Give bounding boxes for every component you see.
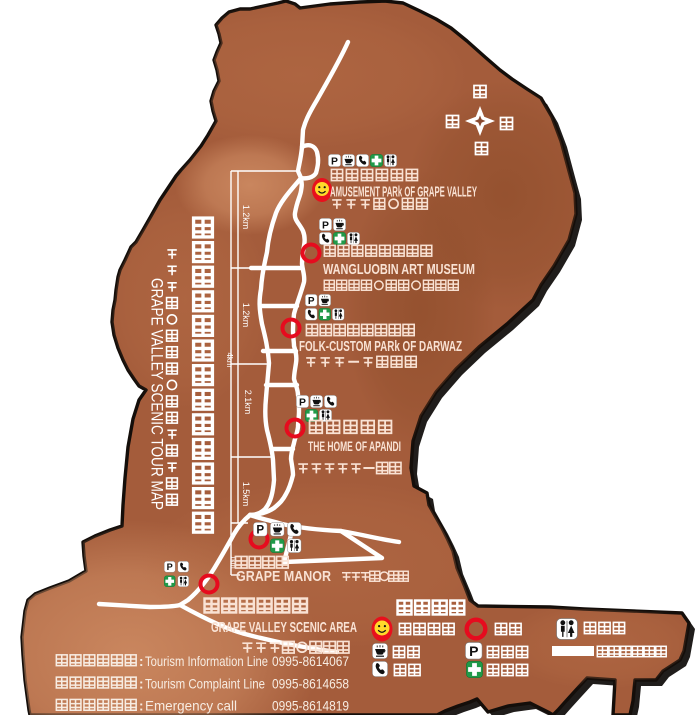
- svg-text:GRAPE MANOR: GRAPE MANOR: [236, 569, 331, 585]
- svg-text:1.2km: 1.2km: [241, 205, 251, 230]
- svg-text:0995-8614067: 0995-8614067: [272, 654, 349, 669]
- svg-text:Emergency call: Emergency call: [145, 699, 237, 714]
- svg-text:2.1km: 2.1km: [243, 390, 253, 415]
- svg-text:Tourism Complaint Line: Tourism Complaint Line: [145, 676, 265, 691]
- svg-text:4km: 4km: [225, 352, 234, 367]
- svg-text:GRAPE VALLEY SCENIC AREA: GRAPE VALLEY SCENIC AREA: [211, 619, 357, 636]
- svg-text::: :: [139, 676, 144, 691]
- svg-text:THE HOME OF APANDI: THE HOME OF APANDI: [308, 438, 401, 454]
- svg-text:FOLK-CUSTOM PARk OF DARWAZ: FOLK-CUSTOM PARk OF DARWAZ: [299, 339, 462, 355]
- svg-text:WANGLUOBIN ART MUSEUM: WANGLUOBIN ART MUSEUM: [323, 261, 475, 278]
- svg-text:0995-8614658: 0995-8614658: [272, 676, 349, 691]
- svg-text::: :: [139, 654, 144, 669]
- svg-text::: :: [139, 699, 144, 714]
- svg-text:1.2km: 1.2km: [241, 303, 251, 328]
- svg-text:GRAPE VALLEY SCENIC TOUR M: GRAPE VALLEY SCENIC TOUR MAP: [148, 278, 166, 510]
- svg-text:1.5km: 1.5km: [241, 482, 251, 507]
- svg-text:Tourism Information Line: Tourism Information Line: [145, 654, 268, 669]
- svg-text:0995-8614819: 0995-8614819: [272, 699, 349, 714]
